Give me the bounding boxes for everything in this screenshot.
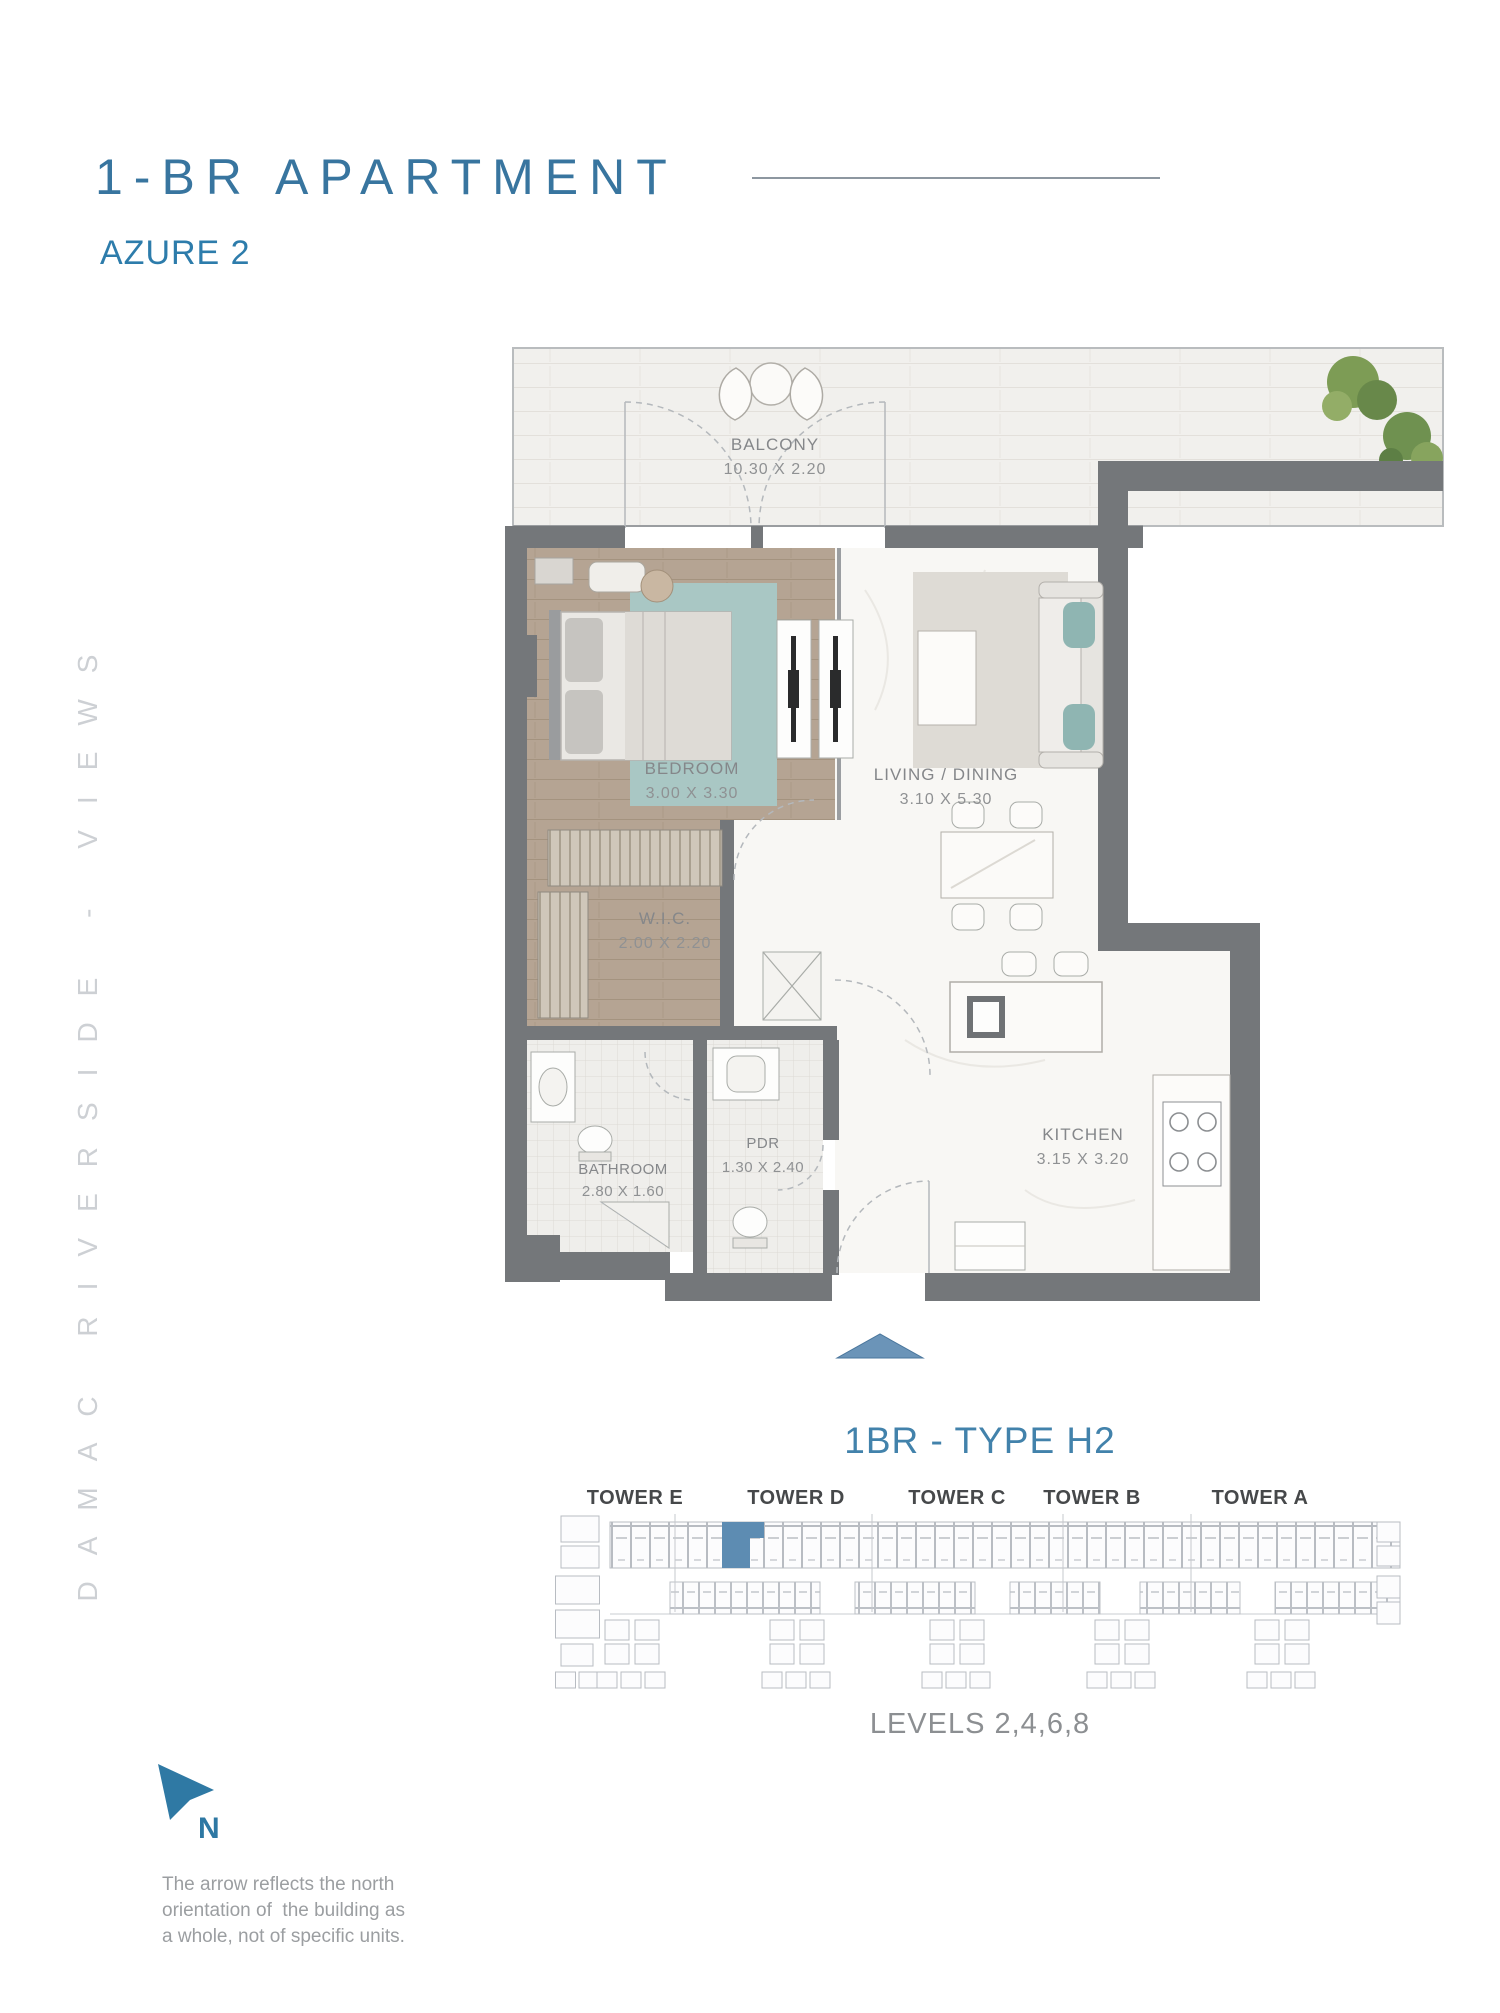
- coffee-table: [918, 631, 976, 725]
- bedroom-dresser: [535, 558, 573, 584]
- wall-bath-bottom: [545, 1252, 670, 1280]
- side-vertical-brand-text: DAMAC RIVERSIDE - VIEWS: [72, 465, 112, 1765]
- dining-chair-4: [1010, 904, 1042, 930]
- sofa-arm-bottom: [1039, 752, 1103, 768]
- kitchen-stool-2: [1054, 952, 1088, 976]
- wic-label: W.I.C.: [639, 909, 691, 928]
- tower-schematic: [556, 1514, 1401, 1688]
- balcony-area: [513, 348, 1443, 526]
- levels-text: LEVELS 2,4,6,8: [730, 1708, 1230, 1741]
- wic-wardrobe: [538, 892, 588, 1018]
- dining-table: [941, 832, 1053, 898]
- unit-row-2c: [1010, 1582, 1100, 1614]
- title-rule-line: [752, 177, 1160, 179]
- highlighted-unit-nub: [748, 1522, 764, 1538]
- dining-chair-3: [952, 904, 984, 930]
- bed-headboard: [549, 610, 561, 760]
- unit-type-heading: 1BR - TYPE H2: [730, 1420, 1230, 1462]
- tower-a-label: TOWER A: [1212, 1487, 1309, 1509]
- bathroom-toilet-tank: [579, 1152, 611, 1161]
- pdr-toilet: [733, 1207, 767, 1237]
- unit-row-2b: [855, 1582, 975, 1614]
- balcony-label: BALCONY: [731, 435, 819, 454]
- unit-row-2a: [670, 1582, 820, 1614]
- kitchen-label: KITCHEN: [1042, 1125, 1124, 1144]
- bedroom-dims: 3.00 X 3.30: [646, 785, 739, 802]
- bathroom-toilet: [578, 1126, 612, 1154]
- pdr-label: PDR: [746, 1135, 779, 1152]
- wall-bottom-left: [665, 1273, 832, 1301]
- bathroom-dims: 2.80 X 1.60: [582, 1183, 664, 1200]
- bed-pillow-2: [565, 690, 603, 754]
- wall-pdr-right-lower: [823, 1190, 839, 1275]
- wall-left-jog: [505, 635, 537, 697]
- bathroom-label: BATHROOM: [578, 1161, 668, 1178]
- wall-pdr-top: [707, 1026, 837, 1040]
- living-label: LIVING / DINING: [874, 765, 1018, 784]
- wall-step: [1098, 923, 1260, 951]
- highlighted-unit: [722, 1522, 750, 1568]
- footnote: The arrow reflects the north orientation…: [162, 1872, 405, 1949]
- balcony-dims: 10.30 X 2.20: [724, 461, 827, 478]
- sofa-cushion-teal-2: [1063, 704, 1095, 750]
- sofa-arm-top: [1039, 582, 1103, 598]
- footnote-line-2: orientation of the building as: [162, 1898, 405, 1924]
- kitchen-dims: 3.15 X 3.20: [1037, 1151, 1130, 1168]
- footnote-line-1: The arrow reflects the north: [162, 1872, 405, 1898]
- pdr-toilet-tank: [733, 1238, 767, 1248]
- building-subtitle: AZURE 2: [100, 234, 251, 273]
- pdr-dims: 1.30 X 2.40: [722, 1159, 804, 1176]
- entry-arrow: [837, 1334, 923, 1358]
- north-compass: N: [152, 1760, 242, 1850]
- tower-e-label: TOWER E: [587, 1487, 683, 1509]
- wall-outdoor-top: [1098, 461, 1443, 491]
- tower-d-label: TOWER D: [747, 1487, 845, 1509]
- bedroom-label: BEDROOM: [645, 759, 740, 778]
- bedroom-bench: [589, 562, 645, 592]
- bathroom-sink: [539, 1068, 567, 1106]
- bedroom-pouf: [641, 570, 673, 602]
- bed-blanket: [625, 612, 731, 760]
- left-unit-stack: [556, 1516, 600, 1688]
- tower-b-label: TOWER B: [1043, 1487, 1141, 1509]
- brochure-page: 1-BR APARTMENT AZURE 2 DAMAC RIVERSIDE -…: [0, 0, 1500, 2013]
- balcony-table: [750, 363, 792, 405]
- wall-top-a: [505, 526, 625, 548]
- living-dims: 3.10 X 5.30: [900, 791, 993, 808]
- bedroom-wardrobe: [548, 830, 722, 886]
- wall-bottom-right: [925, 1273, 1260, 1301]
- bed-pillow-1: [565, 618, 603, 682]
- tower-c-label: TOWER C: [908, 1487, 1006, 1509]
- wall-bath-top: [527, 1026, 707, 1040]
- page-title: 1-BR APARTMENT: [95, 148, 678, 206]
- kitchen-stool-1: [1002, 952, 1036, 976]
- wall-bath-pdr: [693, 1040, 707, 1273]
- tower-key-plan: TOWER E TOWER D TOWER C TOWER B TOWER A: [555, 1480, 1455, 1708]
- balcony-floor: [513, 348, 1443, 526]
- unit-row-2d: [1140, 1582, 1240, 1614]
- pdr-sink: [727, 1056, 765, 1092]
- floor-plan: BALCONY 10.30 X 2.20 BEDROOM 3.00 X 3.30…: [505, 340, 1455, 1370]
- footnote-line-3: a whole, not of specific units.: [162, 1924, 405, 1950]
- sofa-cushion-teal-1: [1063, 602, 1095, 648]
- dining-chair-2: [1010, 802, 1042, 828]
- tower-labels: TOWER E TOWER D TOWER C TOWER B TOWER A: [587, 1487, 1309, 1509]
- wic-dims: 2.00 X 2.20: [619, 935, 712, 952]
- north-letter: N: [198, 1812, 220, 1845]
- wall-right-lower: [1230, 951, 1260, 1301]
- wall-top-post: [751, 526, 763, 548]
- wall-pdr-right-upper: [823, 1040, 839, 1140]
